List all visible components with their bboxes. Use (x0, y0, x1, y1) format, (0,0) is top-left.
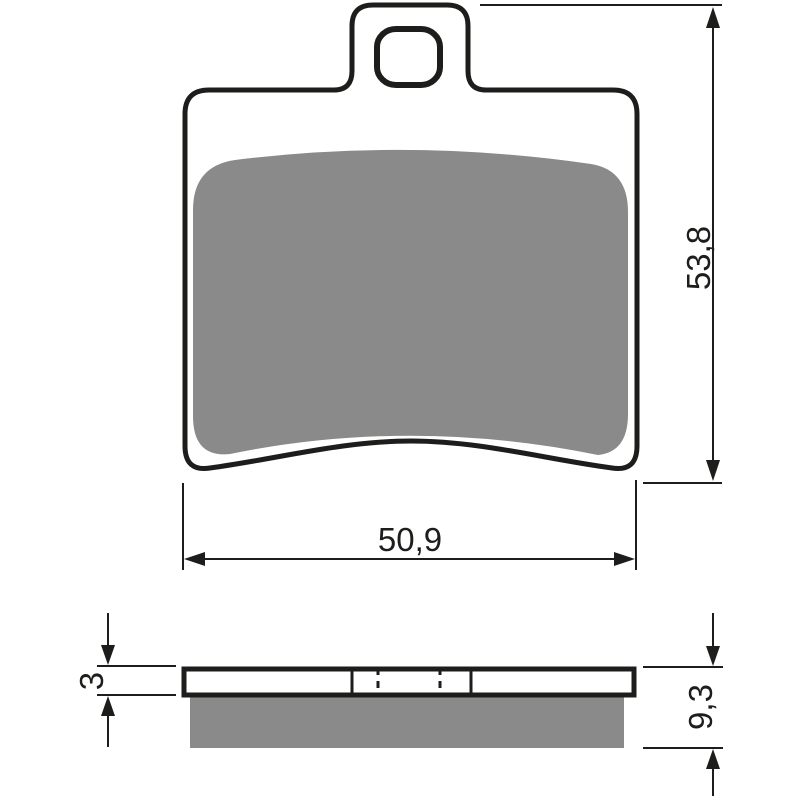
plate-dim-arrow-down (101, 645, 115, 665)
mounting-tab-hole (377, 29, 440, 85)
plate-dim-arrow-up (101, 696, 115, 716)
total-thickness-label: 9,3 (682, 684, 719, 730)
total-dim-arrow-up (706, 749, 720, 769)
height-dim-label: 53,8 (680, 226, 717, 290)
plate-thickness-label: 3 (73, 672, 110, 690)
width-dim-arrow-right (614, 552, 635, 566)
friction-material-top (193, 150, 628, 455)
height-dim-arrow-top (706, 7, 720, 28)
height-dim-arrow-bottom (706, 460, 720, 481)
technical-drawing-page: 53,8 50,9 (0, 0, 800, 800)
backplate-side (184, 669, 634, 695)
brake-pad-technical-drawing: 53,8 50,9 (0, 0, 800, 800)
friction-material-side (190, 697, 624, 748)
total-thickness-dimension: 9,3 (643, 613, 723, 796)
side-view: 3 9,3 (73, 613, 723, 796)
width-dim-arrow-left (184, 552, 205, 566)
total-dim-arrow-down (706, 646, 720, 666)
top-view: 53,8 50,9 (183, 5, 722, 570)
width-dimension: 50,9 (183, 480, 636, 570)
plate-thickness-dimension: 3 (73, 613, 176, 747)
width-dim-label: 50,9 (378, 521, 442, 558)
